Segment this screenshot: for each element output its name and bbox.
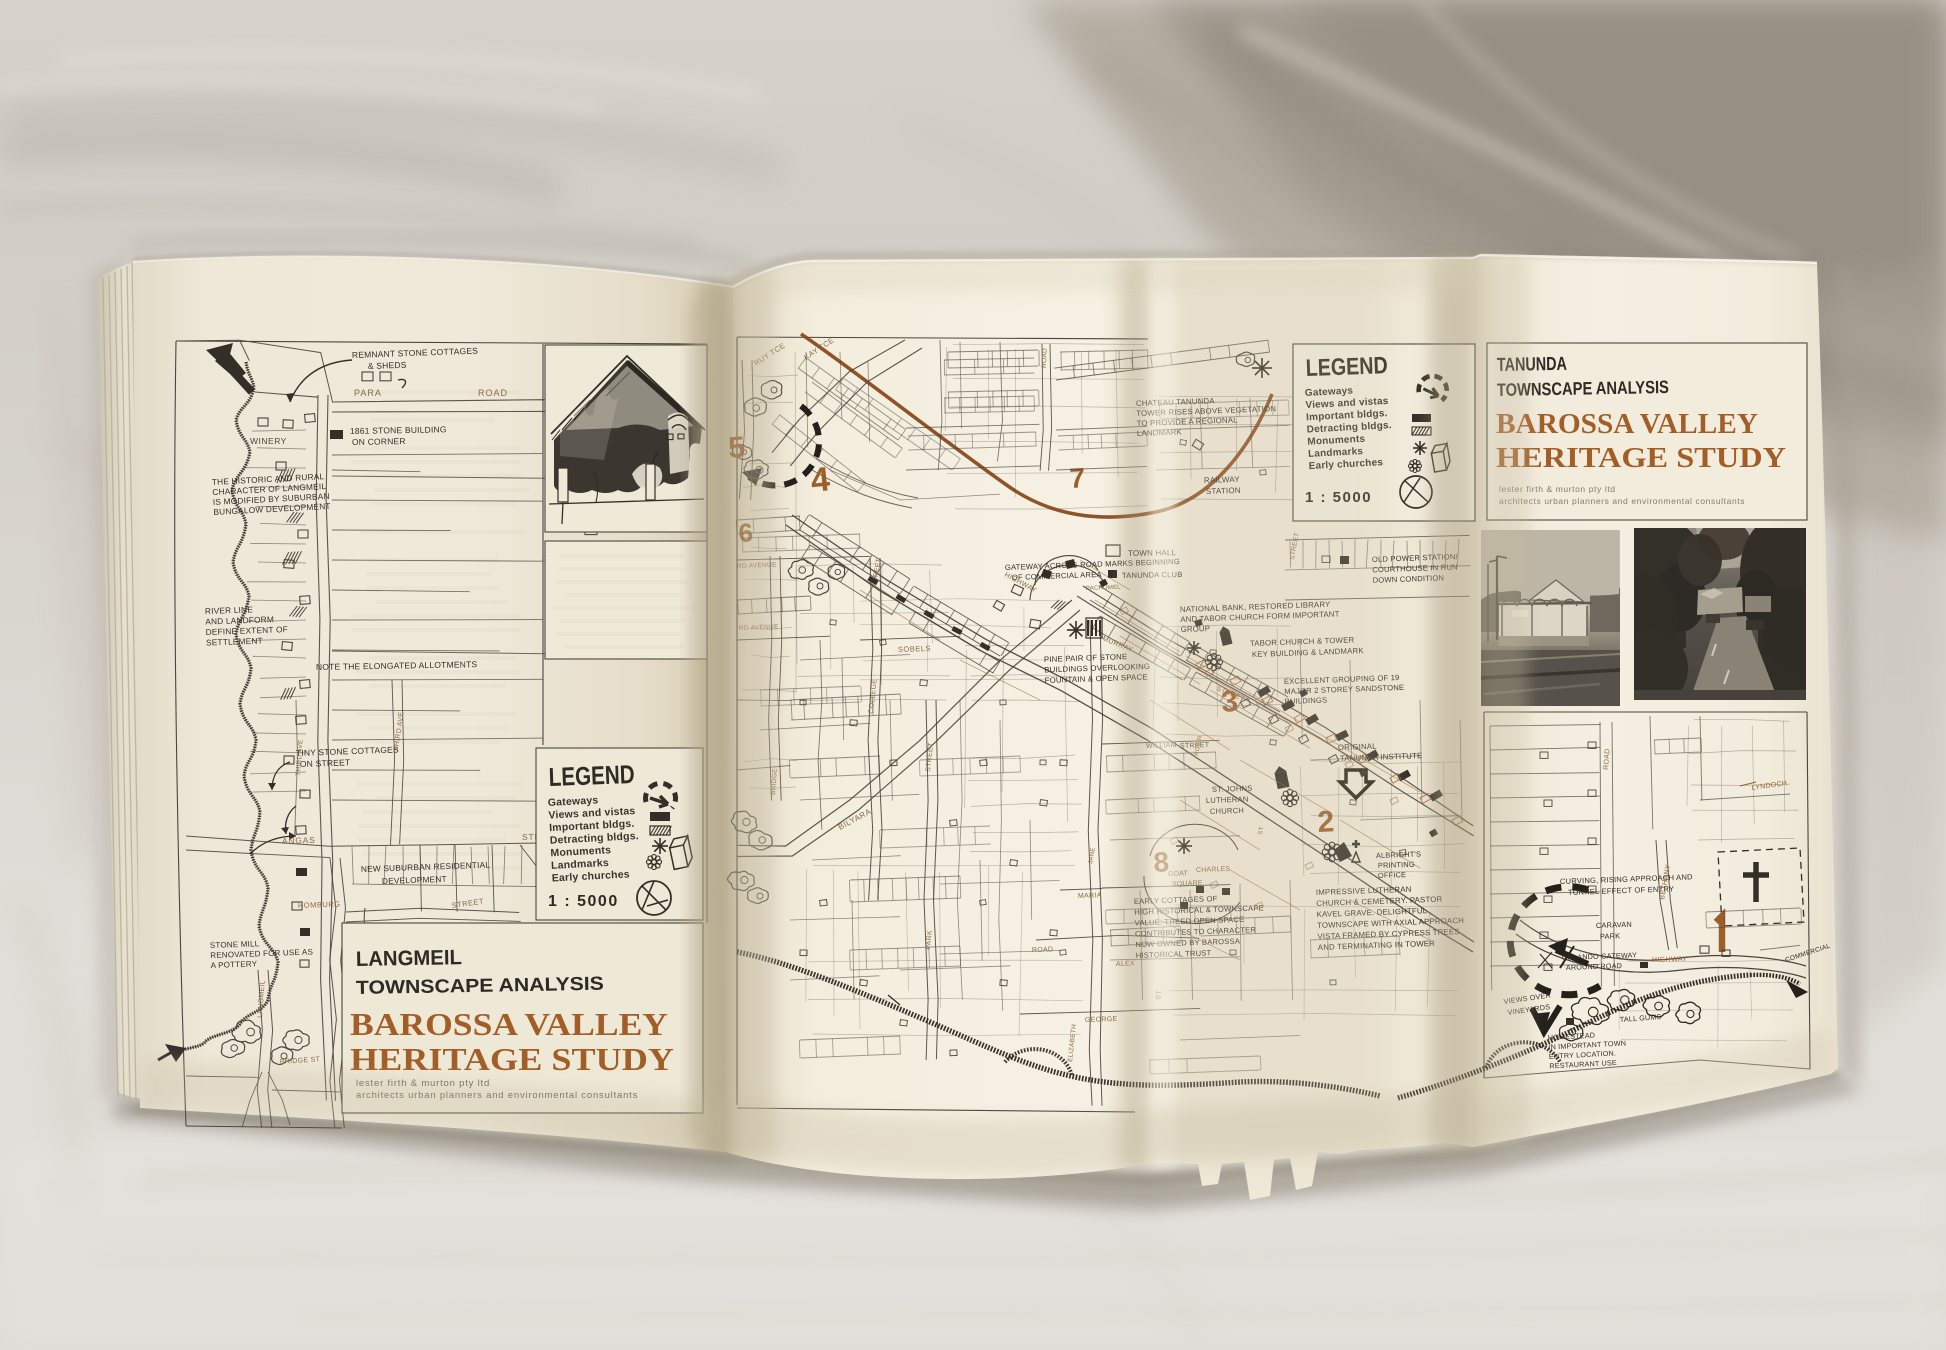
- svg-text:ON STREET: ON STREET: [300, 757, 351, 769]
- svg-text:ON CORNER: ON CORNER: [352, 436, 406, 447]
- svg-text:HIGHWAY: HIGHWAY: [1652, 956, 1688, 964]
- svg-text:SOBELS: SOBELS: [898, 644, 931, 654]
- svg-text:WINERY: WINERY: [250, 436, 287, 446]
- svg-text:HERITAGE STUDY: HERITAGE STUDY: [350, 1041, 674, 1077]
- svg-text:1 : 5000: 1 : 5000: [548, 893, 619, 910]
- svg-text:PARK: PARK: [1600, 931, 1621, 941]
- svg-text:HERITAGE STUDY: HERITAGE STUDY: [1496, 442, 1786, 474]
- svg-text:ROAD: ROAD: [1603, 748, 1611, 770]
- svg-text:SETTLEMENT: SETTLEMENT: [206, 636, 263, 648]
- svg-text:TOWNSCAPE ANALYSIS: TOWNSCAPE ANALYSIS: [356, 974, 604, 999]
- svg-text:BAROSSA VALLEY: BAROSSA VALLEY: [1496, 408, 1758, 440]
- svg-text:architects urban planners a: architects urban planners and environmen…: [1499, 496, 1745, 506]
- svg-text:ROAD: ROAD: [1041, 348, 1049, 368]
- svg-text:MARIA: MARIA: [1078, 892, 1102, 900]
- svg-text:LEGEND: LEGEND: [548, 759, 635, 792]
- svg-text:BAROSSA VALLEY: BAROSSA VALLEY: [350, 1006, 668, 1042]
- svg-text:LANGMEIL: LANGMEIL: [356, 946, 463, 971]
- svg-text:ROAD: ROAD: [478, 388, 508, 398]
- svg-text:ROAD: ROAD: [1032, 946, 1054, 954]
- svg-text:7: 7: [1069, 462, 1086, 494]
- svg-text:PARA: PARA: [354, 388, 382, 398]
- svg-text:& SHEDS: & SHEDS: [368, 360, 407, 371]
- svg-text:CARAVAN: CARAVAN: [1596, 920, 1632, 930]
- svg-text:STONE MILL: STONE MILL: [210, 939, 260, 950]
- svg-text:GEORGE: GEORGE: [1085, 1016, 1118, 1024]
- svg-text:1861 STONE BUILDING: 1861 STONE BUILDING: [350, 424, 447, 436]
- svg-text:ANGAS: ANGAS: [282, 835, 316, 846]
- svg-text:A POTTERY: A POTTERY: [210, 959, 257, 970]
- svg-text:HOMBURG: HOMBURG: [298, 900, 341, 910]
